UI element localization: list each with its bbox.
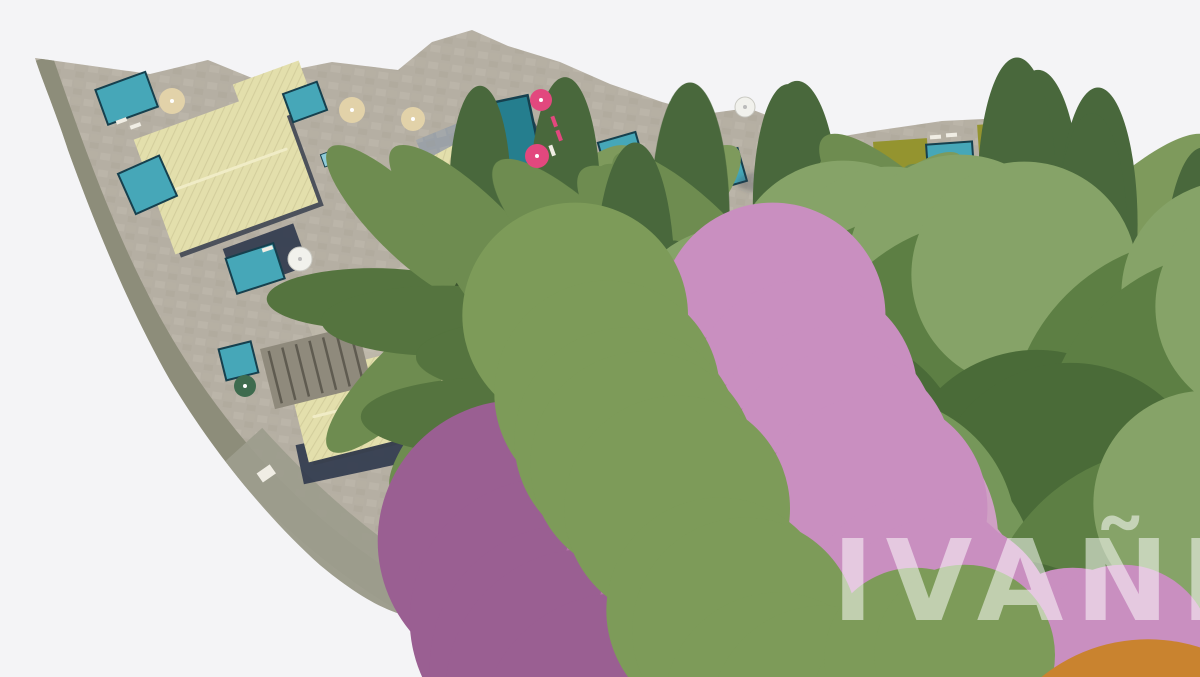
aerial-site-plan-render: IVAÑE xyxy=(0,0,1200,677)
watermark-text: IVAÑE xyxy=(832,515,1200,647)
swimming-pool xyxy=(219,341,259,380)
site-plan-canvas: IVAÑE xyxy=(0,0,1200,677)
